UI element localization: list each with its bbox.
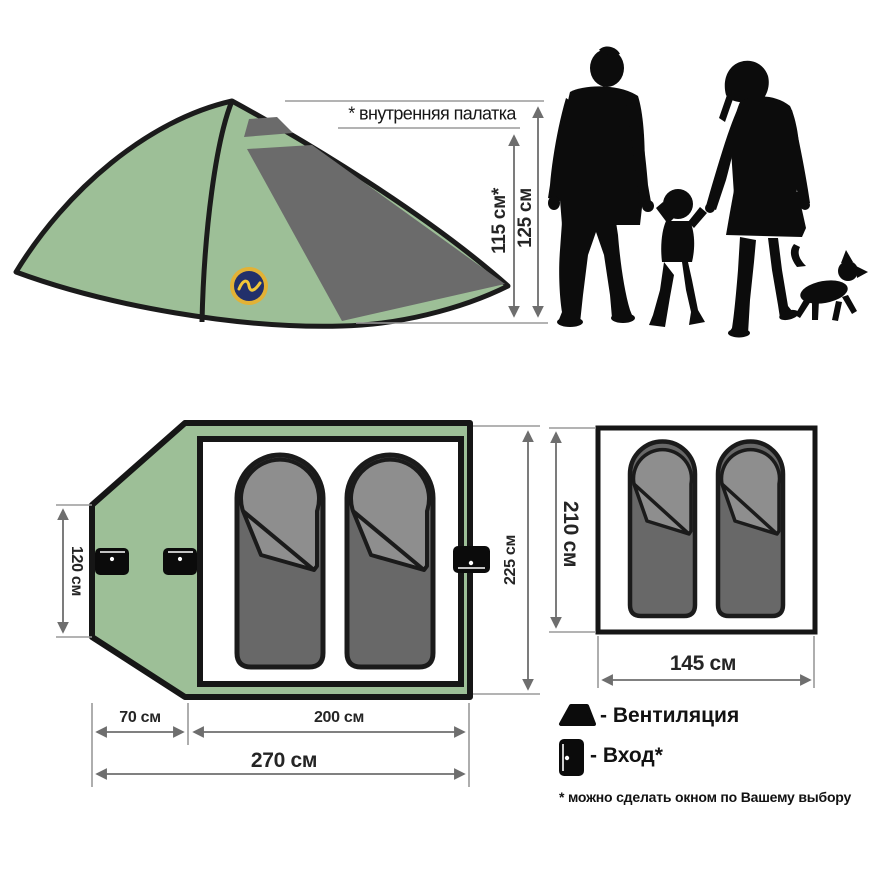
woman-silhouette	[705, 61, 810, 338]
dim-inner-plan-height: 210 см	[558, 501, 582, 567]
man-silhouette	[548, 47, 654, 327]
sleeping-bag-icon	[718, 442, 783, 617]
family-silhouette	[548, 47, 868, 338]
legend-ventilation-label: - Вентиляция	[600, 704, 739, 728]
tent-spec-infographic: * внутренняя палатка 115 см* 125 см 120 …	[0, 0, 875, 875]
dim-inner-depth: 200 см	[314, 709, 364, 727]
legend-entrance-label: - Вход*	[590, 744, 663, 768]
entrance-icon	[559, 739, 584, 776]
entrance-icon	[163, 548, 197, 575]
dim-inner-height: 115 см*	[489, 188, 511, 254]
tent-side-view	[16, 101, 508, 326]
dim-total-depth: 270 см	[251, 749, 317, 773]
dim-tent-width: 225 см	[502, 535, 520, 585]
legend-footnote: * можно сделать окном по Вашему выбору	[559, 789, 851, 805]
diagram-graphics	[0, 0, 875, 875]
dog-silhouette	[791, 244, 868, 321]
entrance-icon	[95, 548, 129, 575]
dim-inner-plan-width: 145 см	[670, 652, 736, 676]
sleeping-bag-icon	[630, 442, 695, 617]
entrance-icon	[453, 546, 490, 573]
inner-tent-note: * внутренняя палатка	[348, 104, 516, 125]
sleeping-bag-icon	[237, 455, 323, 667]
sleeping-bag-icon	[347, 455, 433, 667]
ventilation-icon	[561, 706, 594, 724]
dim-outer-height: 125 см	[515, 188, 537, 248]
outer-floor-plan	[56, 423, 540, 787]
legend	[559, 706, 594, 776]
brand-logo-icon	[230, 267, 268, 305]
dim-vestibule-width: 120 см	[67, 546, 85, 596]
child-silhouette	[649, 189, 707, 327]
dim-vestibule-depth: 70 см	[119, 709, 160, 727]
inner-floor-plan	[549, 428, 815, 688]
